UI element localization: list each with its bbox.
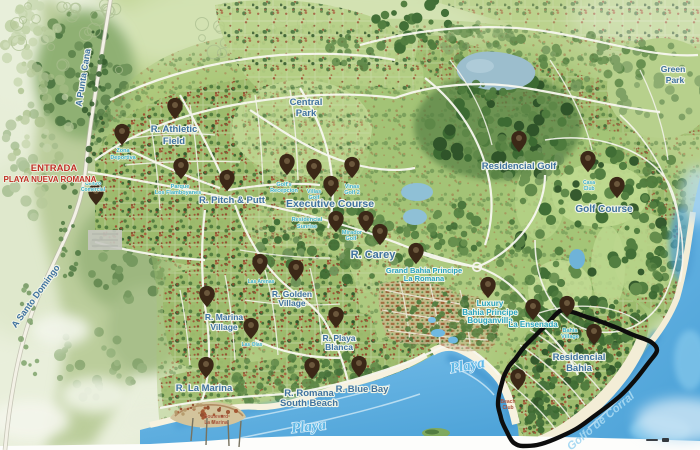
svg-text:R. Athletic: R. Athletic	[151, 124, 198, 135]
svg-text:La Ensenada: La Ensenada	[508, 320, 558, 329]
svg-text:Golf 2: Golf 2	[344, 190, 360, 196]
svg-text:R. Blue Bay: R. Blue Bay	[336, 384, 390, 395]
svg-text:Residencial Golf: Residencial Golf	[482, 161, 557, 172]
svg-text:Club: Club	[583, 186, 594, 192]
svg-text:Las Arenas: Las Arenas	[248, 279, 275, 285]
svg-text:R. Pitch & Putt: R. Pitch & Putt	[199, 195, 266, 206]
svg-text:R. Marina: R. Marina	[205, 312, 244, 322]
svg-text:Residencial: Residencial	[553, 352, 606, 363]
svg-text:Luxury: Luxury	[477, 299, 504, 308]
svg-text:R. Carey: R. Carey	[351, 249, 397, 261]
svg-text:Village: Village	[210, 322, 238, 332]
svg-text:Los Flamboyanes: Los Flamboyanes	[155, 190, 201, 196]
svg-text:Park: Park	[296, 108, 317, 119]
svg-text:Zona: Zona	[116, 148, 130, 154]
svg-text:R. La Marina: R. La Marina	[176, 383, 233, 394]
svg-text:Golf: Golf	[346, 236, 357, 242]
svg-text:Bouganville: Bouganville	[467, 316, 513, 325]
svg-text:PLAYA NUEVA ROMANA: PLAYA NUEVA ROMANA	[4, 175, 97, 184]
svg-text:South Beach: South Beach	[280, 398, 338, 409]
svg-text:Green: Green	[661, 64, 686, 74]
svg-text:La Marina: La Marina	[204, 420, 228, 426]
svg-text:Field: Field	[163, 136, 185, 147]
svg-text:La Romana: La Romana	[404, 274, 445, 283]
svg-text:Park: Park	[666, 75, 685, 85]
svg-text:Las Olas: Las Olas	[242, 342, 263, 348]
svg-text:Residencial: Residencial	[292, 217, 323, 223]
svg-text:ENTRADA: ENTRADA	[31, 163, 78, 174]
svg-text:Golf: Golf	[309, 195, 320, 201]
svg-text:Sunrise: Sunrise	[297, 224, 317, 230]
svg-text:Blanca: Blanca	[325, 342, 353, 352]
svg-text:Golf Course: Golf Course	[575, 204, 633, 215]
svg-text:Executive Course: Executive Course	[286, 198, 374, 210]
svg-text:Deportiva: Deportiva	[110, 155, 136, 161]
svg-text:Comercial: Comercial	[81, 187, 106, 193]
svg-text:Village: Village	[278, 298, 306, 308]
svg-text:Village: Village	[561, 334, 579, 340]
svg-text:Club: Club	[502, 405, 513, 411]
svg-text:Recepcion: Recepcion	[270, 188, 298, 194]
svg-text:Central: Central	[290, 97, 323, 108]
svg-text:Bahia: Bahia	[566, 363, 593, 374]
